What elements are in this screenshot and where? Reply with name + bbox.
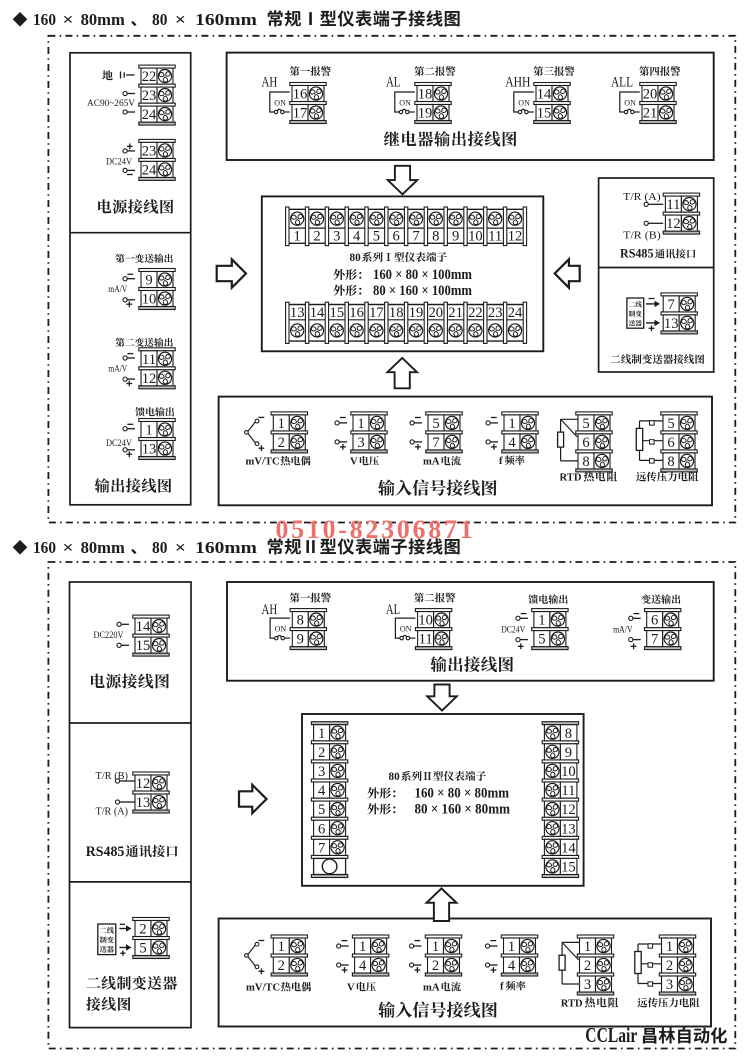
- svg-text:13: 13: [136, 795, 151, 811]
- svg-text:2: 2: [278, 958, 285, 974]
- svg-text:160 × 80 × 100mm: 160 × 80 × 100mm: [373, 267, 472, 283]
- svg-text:2: 2: [139, 922, 146, 938]
- svg-text:80 × 160 × 100mm: 80 × 160 × 100mm: [373, 283, 472, 299]
- svg-text:ON: ON: [624, 99, 636, 108]
- svg-text:160mm: 160mm: [195, 538, 257, 557]
- svg-text:17: 17: [369, 305, 384, 321]
- svg-text:1: 1: [508, 939, 515, 955]
- svg-text:13: 13: [142, 442, 157, 458]
- svg-text:80: 80: [152, 538, 167, 557]
- svg-text:f: f: [500, 982, 504, 993]
- svg-text:3: 3: [666, 977, 673, 993]
- svg-text:12: 12: [561, 802, 576, 818]
- svg-text:4: 4: [318, 783, 326, 799]
- svg-text:15: 15: [561, 860, 576, 876]
- svg-text:1: 1: [508, 416, 515, 432]
- svg-text:4: 4: [508, 435, 516, 451]
- svg-text:1: 1: [278, 939, 285, 955]
- svg-text:RS485: RS485: [86, 844, 125, 860]
- svg-text:13: 13: [664, 316, 679, 332]
- svg-text:×: ×: [63, 10, 74, 29]
- svg-text:3: 3: [584, 977, 591, 993]
- svg-text:12: 12: [142, 371, 157, 387]
- svg-text:1: 1: [145, 423, 152, 439]
- svg-text:11: 11: [488, 228, 502, 244]
- svg-text:23: 23: [142, 144, 157, 160]
- svg-text:mA: mA: [423, 457, 440, 468]
- svg-text:8: 8: [582, 454, 589, 470]
- svg-text:9: 9: [452, 228, 459, 244]
- svg-text:mA/V: mA/V: [108, 363, 127, 373]
- svg-text:1: 1: [432, 939, 439, 955]
- svg-text:7: 7: [651, 632, 658, 648]
- svg-text:4: 4: [353, 228, 361, 244]
- svg-text:2: 2: [278, 435, 285, 451]
- svg-text:24: 24: [508, 305, 523, 321]
- svg-text:2: 2: [313, 228, 320, 244]
- svg-text:15: 15: [330, 305, 345, 321]
- svg-text:T/R (A): T/R (A): [96, 807, 129, 818]
- svg-text:6: 6: [651, 613, 658, 629]
- svg-text:9: 9: [297, 632, 304, 648]
- svg-text:1: 1: [278, 416, 285, 432]
- svg-text:mV/TC: mV/TC: [246, 457, 280, 468]
- svg-text:6: 6: [318, 821, 325, 837]
- svg-text:80: 80: [152, 10, 167, 29]
- svg-text:DC24V: DC24V: [106, 157, 132, 168]
- svg-text:2: 2: [432, 958, 439, 974]
- svg-text:6: 6: [582, 435, 589, 451]
- svg-text:mA/V: mA/V: [108, 284, 127, 294]
- svg-text:16: 16: [293, 87, 308, 103]
- svg-text:ON: ON: [275, 625, 287, 634]
- svg-text:20: 20: [429, 305, 444, 321]
- svg-text:17: 17: [293, 106, 308, 122]
- svg-text:22: 22: [468, 305, 483, 321]
- svg-text:9: 9: [565, 745, 572, 761]
- svg-text:11: 11: [419, 632, 433, 648]
- svg-text:18: 18: [418, 87, 433, 103]
- svg-text:T/R (A): T/R (A): [623, 192, 661, 203]
- svg-text:14: 14: [310, 305, 325, 321]
- svg-text:5: 5: [538, 632, 545, 648]
- svg-text:18: 18: [389, 305, 404, 321]
- svg-text:ON: ON: [399, 99, 411, 108]
- svg-text:9: 9: [145, 273, 152, 289]
- svg-text:AH: AH: [262, 75, 278, 91]
- svg-text:5: 5: [139, 941, 146, 957]
- svg-text:13: 13: [290, 305, 305, 321]
- svg-text:23: 23: [488, 305, 503, 321]
- svg-text:2: 2: [318, 745, 325, 761]
- svg-text:15: 15: [136, 638, 151, 654]
- svg-text:80 × 160 × 80mm: 80 × 160 × 80mm: [415, 802, 511, 818]
- svg-text:DC24V: DC24V: [106, 438, 132, 449]
- svg-text:24: 24: [142, 107, 157, 123]
- svg-text:5: 5: [373, 228, 380, 244]
- svg-text:ON: ON: [400, 625, 412, 634]
- svg-text:AL: AL: [386, 602, 400, 618]
- svg-text:11: 11: [142, 352, 156, 368]
- svg-text:11: 11: [666, 197, 680, 213]
- svg-text:21: 21: [643, 106, 658, 122]
- svg-text:5: 5: [318, 802, 325, 818]
- svg-text:×: ×: [175, 10, 186, 29]
- svg-text:5: 5: [582, 416, 589, 432]
- svg-text:22: 22: [142, 69, 157, 85]
- svg-text:2: 2: [666, 958, 673, 974]
- svg-text:3: 3: [357, 435, 364, 451]
- svg-text:160: 160: [33, 10, 56, 29]
- svg-text:5: 5: [432, 416, 439, 432]
- svg-text:8: 8: [432, 228, 439, 244]
- svg-text:4: 4: [508, 958, 516, 974]
- svg-text:80mm: 80mm: [81, 538, 126, 557]
- svg-text:13: 13: [561, 821, 576, 837]
- svg-text:24: 24: [142, 163, 157, 179]
- svg-text:160 × 80 × 80mm: 160 × 80 × 80mm: [415, 786, 510, 802]
- svg-text:0510-82306871: 0510-82306871: [276, 515, 476, 544]
- svg-text:f: f: [499, 456, 503, 467]
- svg-text:×: ×: [175, 538, 186, 557]
- svg-text:14: 14: [136, 619, 151, 635]
- svg-text:DC220V: DC220V: [94, 630, 124, 641]
- svg-text:19: 19: [409, 305, 424, 321]
- svg-text:11: 11: [561, 783, 575, 799]
- svg-text:1: 1: [294, 228, 301, 244]
- svg-text:80: 80: [389, 771, 401, 783]
- svg-text:T/R (B): T/R (B): [623, 231, 661, 242]
- svg-text:mA: mA: [423, 983, 440, 994]
- svg-text:7: 7: [412, 228, 419, 244]
- svg-text:19: 19: [418, 106, 433, 122]
- svg-text:14: 14: [537, 87, 552, 103]
- svg-text:7: 7: [668, 297, 675, 313]
- svg-text:15: 15: [537, 106, 552, 122]
- svg-text:3: 3: [318, 764, 325, 780]
- svg-text:RS485: RS485: [620, 247, 654, 261]
- svg-text:4: 4: [359, 958, 367, 974]
- svg-text:10: 10: [561, 764, 576, 780]
- svg-text:12: 12: [666, 216, 681, 232]
- svg-text:DC24V: DC24V: [501, 625, 525, 636]
- svg-text:23: 23: [142, 88, 157, 104]
- svg-text:AHH: AHH: [505, 75, 531, 91]
- svg-text:mA/V: mA/V: [613, 625, 633, 635]
- svg-text:16: 16: [349, 305, 364, 321]
- svg-text:ON: ON: [274, 99, 286, 108]
- svg-text:1: 1: [666, 939, 673, 955]
- svg-text:80mm: 80mm: [81, 10, 126, 29]
- svg-text:V: V: [350, 457, 358, 468]
- svg-text:ALL: ALL: [611, 75, 633, 91]
- svg-text:10: 10: [468, 228, 483, 244]
- svg-text:1: 1: [584, 939, 591, 955]
- svg-text:12: 12: [508, 228, 523, 244]
- svg-text:10: 10: [418, 613, 433, 629]
- svg-text:AL: AL: [386, 75, 400, 91]
- svg-text:1: 1: [357, 416, 364, 432]
- svg-text:80: 80: [350, 252, 362, 264]
- svg-text:12: 12: [136, 776, 151, 792]
- svg-text:2: 2: [584, 958, 591, 974]
- svg-text:160: 160: [33, 538, 56, 557]
- svg-text:8: 8: [667, 454, 674, 470]
- svg-text:14: 14: [561, 840, 576, 856]
- svg-text:mV/TC: mV/TC: [246, 983, 280, 994]
- svg-text:160mm: 160mm: [195, 10, 257, 29]
- svg-text:AH: AH: [262, 602, 278, 618]
- svg-text:RTD: RTD: [561, 999, 583, 1010]
- svg-text:5: 5: [667, 416, 674, 432]
- svg-text:6: 6: [667, 435, 674, 451]
- svg-text:6: 6: [393, 228, 400, 244]
- svg-text:V: V: [347, 983, 355, 994]
- svg-text:7: 7: [432, 435, 439, 451]
- svg-text:10: 10: [142, 292, 157, 308]
- svg-text:1: 1: [318, 726, 325, 742]
- svg-text:ON: ON: [518, 99, 530, 108]
- svg-text:21: 21: [448, 305, 463, 321]
- svg-text:7: 7: [318, 840, 325, 856]
- svg-text:RTD: RTD: [560, 473, 582, 484]
- svg-text:1: 1: [359, 939, 366, 955]
- svg-text:20: 20: [643, 87, 658, 103]
- svg-text:8: 8: [565, 726, 572, 742]
- svg-text:AC90~265V: AC90~265V: [87, 98, 135, 109]
- svg-text:CCLair: CCLair: [585, 1023, 637, 1047]
- svg-text:3: 3: [333, 228, 340, 244]
- svg-text:×: ×: [63, 538, 74, 557]
- svg-text:8: 8: [297, 613, 304, 629]
- svg-text:1: 1: [538, 613, 545, 629]
